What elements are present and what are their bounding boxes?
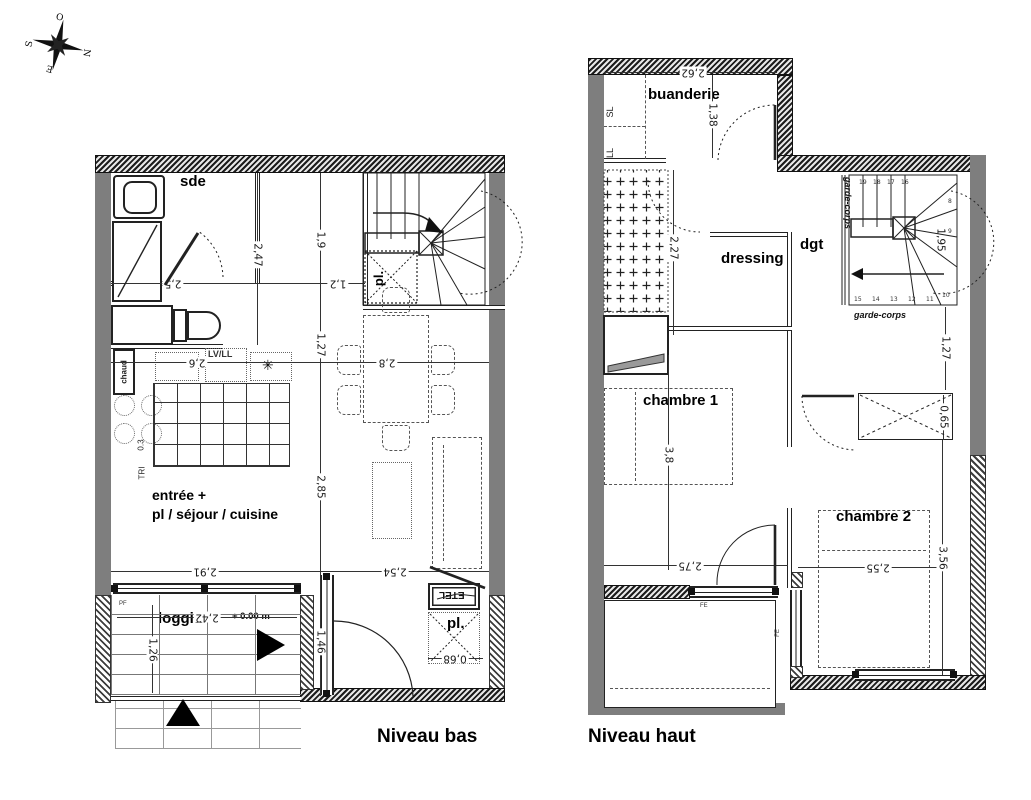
- svg-text:16: 16: [901, 179, 909, 186]
- compass-s: S: [25, 40, 36, 48]
- svg-text:8: 8: [948, 198, 952, 205]
- svg-text:13: 13: [890, 296, 898, 303]
- entry-door-arc: [334, 621, 413, 696]
- svg-text:14: 14: [872, 296, 880, 303]
- compass-rose: O N E S: [18, 8, 113, 98]
- caption-niveau-bas: Niveau bas: [377, 726, 477, 748]
- svg-text:18: 18: [873, 179, 881, 186]
- entry-closet-x: [430, 614, 478, 662]
- pl-closet-x: [860, 395, 951, 438]
- svg-text:10: 10: [942, 292, 950, 299]
- ch1-door-arc: [717, 525, 775, 585]
- stair-up-arrow: [373, 213, 435, 227]
- stair-haut: 19 18 17 16 8 9 15 14 13 12 11 10: [842, 175, 994, 305]
- svg-text:12: 12: [908, 296, 916, 303]
- compass-n: N: [80, 48, 91, 58]
- dressing-door-arc: [648, 180, 700, 232]
- loggia-decking-ext: [115, 701, 301, 749]
- floor-plan-sheet: O N E S chaud 0.3 TRI: [0, 0, 1031, 800]
- plan-niveau-bas: chaud 0.3 TRI LV/LL ✳ sde entrée + pl / …: [95, 155, 505, 705]
- entry-closet-door-leaf: [430, 567, 485, 588]
- sde-door-leaf: [165, 233, 198, 285]
- ch2-door-arc: [802, 396, 856, 450]
- svg-text:17: 17: [887, 179, 895, 186]
- svg-text:11: 11: [926, 296, 934, 303]
- entrance-arrow: [166, 699, 200, 726]
- stair-arrowhead: [851, 268, 863, 280]
- compass-e: E: [46, 62, 55, 73]
- plan-niveau-haut: FE FE buanderie SL LL dressing dgt chamb…: [588, 58, 988, 718]
- stair-bas: [363, 173, 522, 305]
- caption-niveau-haut: Niveau haut: [588, 726, 696, 748]
- svg-text:15: 15: [854, 296, 862, 303]
- bas-linework: [95, 155, 505, 705]
- shower-glass: [118, 225, 157, 297]
- haut-linework: 19 18 17 16 8 9 15 14 13 12 11 10: [588, 58, 988, 718]
- svg-text:9: 9: [948, 228, 952, 235]
- sde-door-swing-arc: [198, 231, 223, 277]
- understair-closet-x: [365, 251, 417, 303]
- svg-text:19: 19: [859, 179, 867, 186]
- buanderie-door-arc: [718, 105, 775, 160]
- etel-zigzag: [437, 594, 475, 599]
